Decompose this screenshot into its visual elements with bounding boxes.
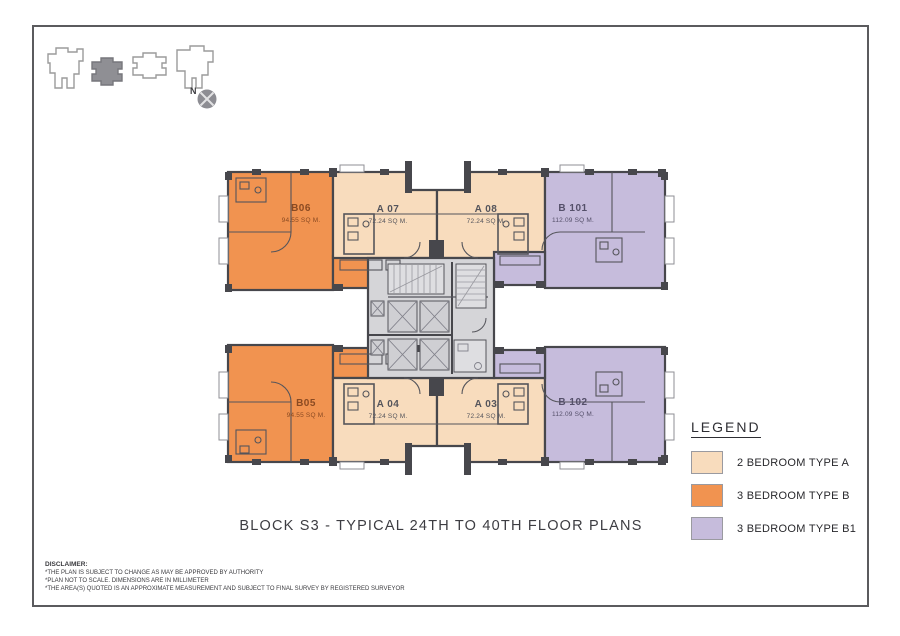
unit-id: A 04: [369, 399, 408, 410]
unit-area: 72.24 SQ M.: [369, 411, 408, 422]
unit-area: 72.24 SQ M.: [467, 411, 506, 422]
legend-item-type-b1: 3 BEDROOM TYPE B1: [691, 518, 871, 539]
unit-area: 72.24 SQ M.: [369, 216, 408, 227]
unit-label-A08: A 08 72.24 SQ M.: [467, 204, 506, 227]
unit-id: B 101: [552, 203, 594, 214]
unit-label-A03: A 03 72.24 SQ M.: [467, 399, 506, 422]
disclaimer-line: *PLAN NOT TO SCALE. DIMENSIONS ARE IN MI…: [45, 577, 405, 585]
keyplan-block-4: [177, 46, 213, 88]
north-compass-icon: [198, 90, 217, 109]
keyplan-block-1: [48, 48, 83, 88]
unit-id: B 102: [552, 397, 594, 408]
unit-id: B05: [287, 398, 326, 409]
plan-title: BLOCK S3 - TYPICAL 24TH TO 40TH FLOOR PL…: [239, 518, 642, 534]
north-label: N: [190, 86, 197, 96]
keyplan-block-3: [133, 53, 166, 78]
floor-plan-sheet: B06 94.55 SQ M. A 07 72.24 SQ M. A 08 72…: [0, 0, 900, 636]
unit-area: 112.09 SQ M.: [552, 215, 594, 226]
unit-id: A 07: [369, 204, 408, 215]
stair-2: [456, 264, 486, 308]
keyplan: [48, 46, 213, 88]
unit-area: 112.09 SQ M.: [552, 409, 594, 420]
unit-label-B06: B06 94.55 SQ M.: [282, 203, 321, 226]
type-a-swatch: [691, 451, 723, 474]
unit-label-B102: B 102 112.09 SQ M.: [552, 397, 594, 420]
unit-id: A 08: [467, 204, 506, 215]
keyplan-block-2-highlighted: [92, 58, 122, 85]
unit-label-A04: A 04 72.24 SQ M.: [369, 399, 408, 422]
disclaimer-line: *THE PLAN IS SUBJECT TO CHANGE AS MAY BE…: [45, 569, 405, 577]
stair-1: [388, 264, 444, 294]
unit-label-B05: B05 94.55 SQ M.: [287, 398, 326, 421]
type-b1-swatch: [691, 517, 723, 540]
legend-item-label: 2 BEDROOM TYPE A: [737, 457, 849, 469]
unit-label-B101: B 101 112.09 SQ M.: [552, 203, 594, 226]
type-b-swatch: [691, 484, 723, 507]
disclaimer-line: *THE AREA(S) QUOTED IS AN APPROXIMATE ME…: [45, 585, 405, 593]
legend-item-type-a: 2 BEDROOM TYPE A: [691, 452, 871, 473]
disclaimer-heading: DISCLAIMER:: [45, 561, 405, 568]
unit-area: 94.55 SQ M.: [287, 410, 326, 421]
disclaimer: DISCLAIMER: *THE PLAN IS SUBJECT TO CHAN…: [45, 561, 405, 593]
unit-area: 72.24 SQ M.: [467, 216, 506, 227]
unit-id: B06: [282, 203, 321, 214]
legend-item-label: 3 BEDROOM TYPE B: [737, 490, 850, 502]
legend-title: LEGEND: [691, 419, 761, 438]
unit-label-A07: A 07 72.24 SQ M.: [369, 204, 408, 227]
legend-item-type-b: 3 BEDROOM TYPE B: [691, 485, 871, 506]
legend: LEGEND 2 BEDROOM TYPE A 3 BEDROOM TYPE B…: [691, 419, 871, 551]
legend-item-label: 3 BEDROOM TYPE B1: [737, 523, 856, 535]
unit-area: 94.55 SQ M.: [282, 215, 321, 226]
unit-id: A 03: [467, 399, 506, 410]
